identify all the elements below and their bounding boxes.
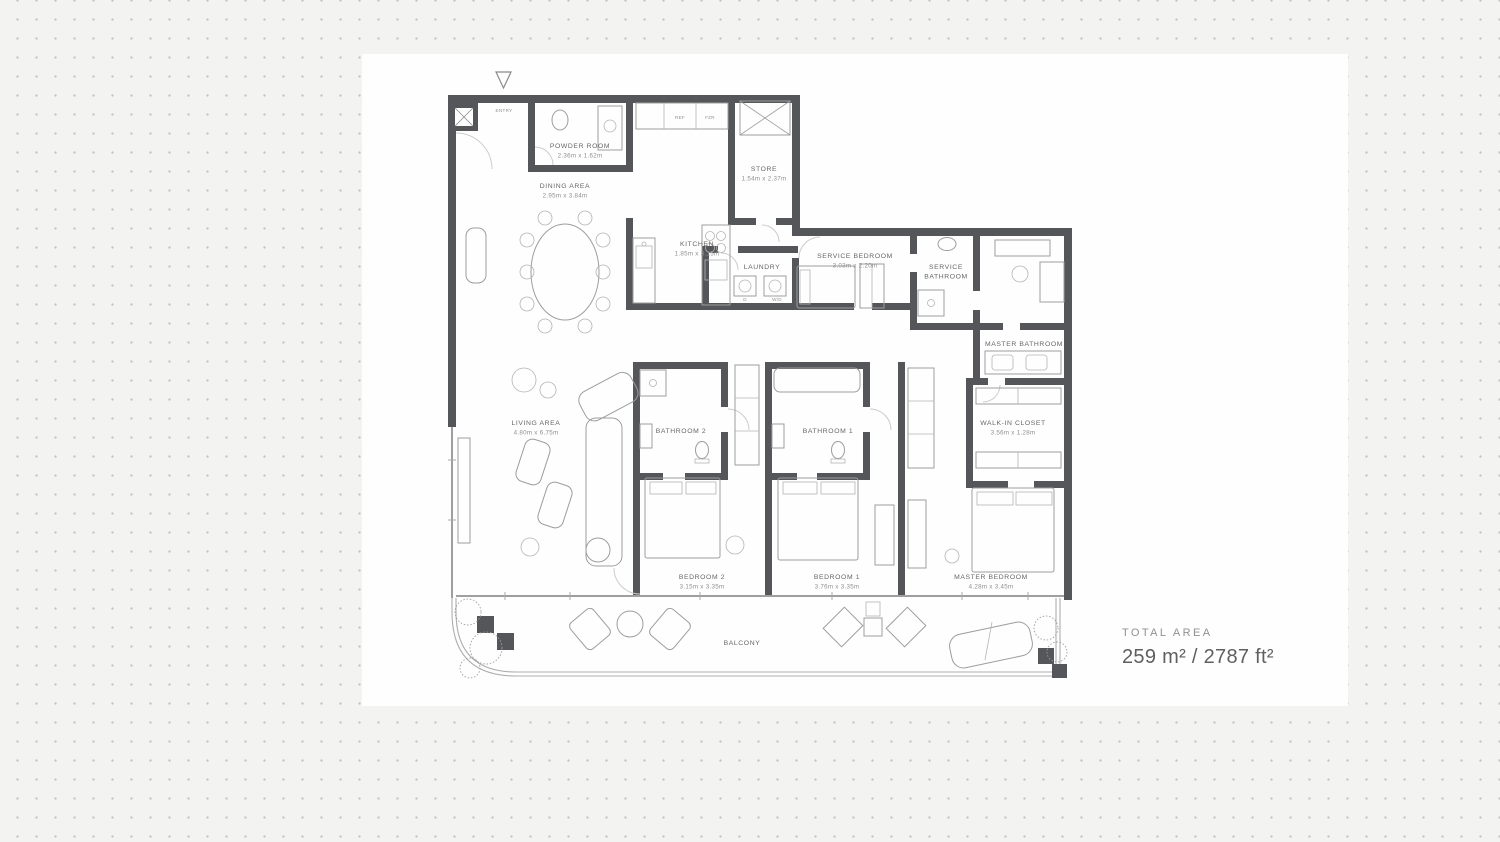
living-furniture: [458, 368, 642, 566]
store-shaft: [740, 101, 790, 135]
service-bedroom-furniture: [797, 264, 884, 308]
bedroom2-furniture: [645, 478, 744, 558]
dressing-room-furniture: [995, 240, 1064, 302]
living-area-dims: 4.80m x 6.75m: [514, 430, 559, 437]
kitchen-fixtures: [633, 103, 730, 305]
store-dims: 1.54m x 2.37m: [742, 176, 787, 183]
dryer-label: D: [743, 297, 747, 302]
service-bathroom-label-line1: SERVICE: [929, 264, 963, 271]
bedroom1-dims: 3.76m x 3.35m: [815, 584, 860, 591]
balcony-label: BALCONY: [724, 640, 761, 647]
bedroom1-furniture: [778, 478, 894, 565]
bedroom1-label: BEDROOM 1: [814, 574, 860, 581]
dining-area-dims: 2.95m x 3.84m: [543, 193, 588, 200]
bedroom2-dims: 3.15m x 3.35m: [680, 584, 725, 591]
master-bedroom-furniture: [908, 488, 1054, 572]
laundry-fixtures: [734, 276, 786, 296]
washer-dryer-label: W/D: [772, 297, 782, 302]
walk-in-closet-dims: 3.56m x 1.28m: [991, 430, 1036, 437]
master-bathroom-fixtures: [985, 351, 1061, 374]
master-bedroom-dims: 4.28m x 3.45m: [969, 584, 1014, 591]
bathroom2-label: BATHROOM 2: [656, 428, 706, 435]
ref-label: REF: [675, 115, 685, 120]
total-area-label: TOTAL AREA: [1122, 627, 1274, 639]
entry-arrow-icon: [496, 72, 511, 88]
fzr-label: FZR: [705, 115, 715, 120]
balcony: [452, 598, 1067, 678]
service-bedroom-label: SERVICE BEDROOM: [817, 253, 893, 260]
service-bedroom-dims: 3.03m x 2.20m: [833, 263, 878, 270]
walk-in-closet-shelving: [976, 388, 1061, 468]
total-area-block: TOTAL AREA 259 m² / 2787 ft²: [1122, 627, 1274, 669]
powder-room-dims: 2.36m x 1.62m: [558, 153, 603, 160]
dining-furniture: [466, 211, 610, 333]
store-label: STORE: [751, 166, 777, 173]
bathroom2-fixtures: [640, 370, 709, 463]
entry-shaft: [455, 108, 473, 126]
kitchen-dims: 1.85m x 3.15m: [675, 251, 720, 258]
powder-room-label: POWDER ROOM: [550, 143, 610, 150]
master-bedroom-label: MASTER BEDROOM: [954, 574, 1028, 581]
total-area-value: 259 m² / 2787 ft²: [1122, 646, 1274, 669]
laundry-label: LAUNDRY: [744, 264, 781, 271]
page-background: ENTRY POWDER ROOM 2.36m x 1.62m DINING A…: [0, 0, 1500, 842]
bathroom1-label: BATHROOM 1: [803, 428, 853, 435]
floor-plan: ENTRY POWDER ROOM 2.36m x 1.62m DINING A…: [440, 65, 1120, 690]
living-area-label: LIVING AREA: [512, 420, 561, 427]
dining-area-label: DINING AREA: [540, 183, 590, 190]
kitchen-label: KITCHEN: [680, 241, 714, 248]
walk-in-closet-label: WALK-IN CLOSET: [980, 420, 1046, 427]
bathroom1-fixtures: [772, 368, 860, 463]
entry-label: ENTRY: [496, 108, 513, 113]
master-bathroom-label: MASTER BATHROOM: [985, 341, 1063, 348]
service-bathroom-label-line2: BATHROOM: [924, 274, 968, 281]
bedroom2-label: BEDROOM 2: [679, 574, 725, 581]
